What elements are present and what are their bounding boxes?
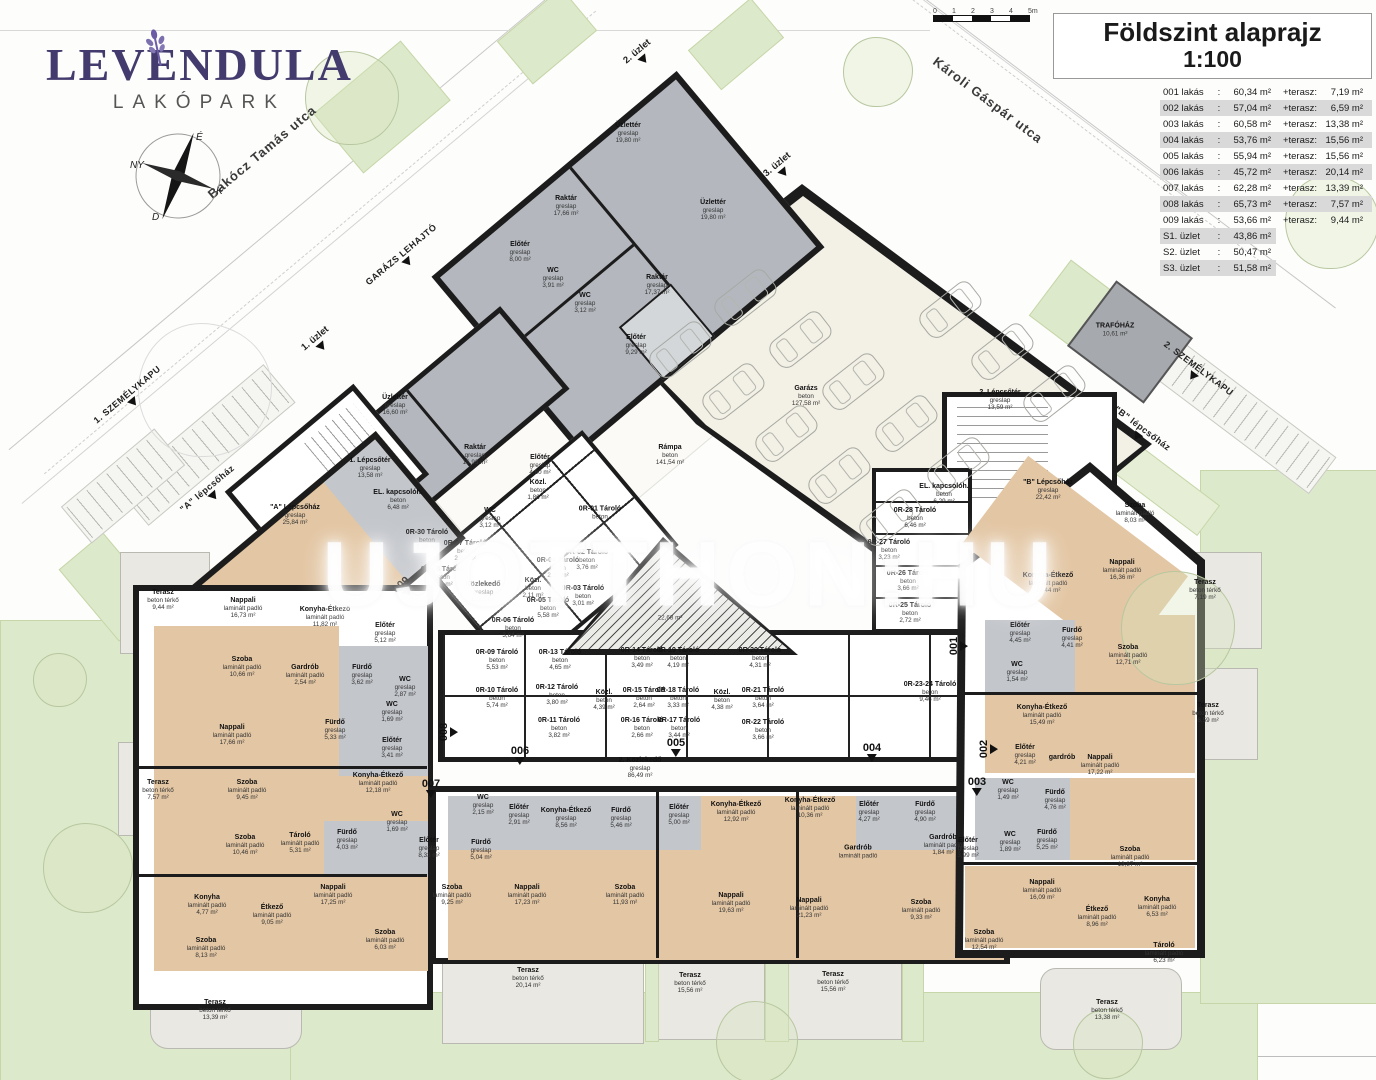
room-label: Nappalilaminált padló21,23 m² [790,897,829,919]
compass-s-label: D [152,212,159,223]
compass-rose: É K D NY [130,128,226,229]
legend-row: 008 lakás:65,73 m²+terasz:7,57 m² [1160,196,1372,212]
site-label: 1. üzlet [299,324,337,360]
party-wall [656,792,659,958]
tree-icon [138,323,272,457]
room-label: 0R-18 Tárolóbeton3,33 m² [657,687,699,709]
tree-icon [43,823,133,913]
site-label: 2. üzlet [621,37,659,73]
scale-bar: 012345m [933,8,1053,22]
room-label: Teraszbeton térkő20,14 m² [512,967,544,989]
plan-scale: 1:100 [1183,46,1242,73]
room-label: Szobalaminált padló8,13 m² [187,937,226,959]
plan-title: Földszint alaprajz [1103,19,1321,46]
room-label: WCgreslap2,87 m² [394,676,415,698]
room-label: Teraszbeton térkő13,39 m² [199,999,231,1021]
room-label: Teraszbeton térkő7,57 m² [142,779,174,801]
room-label: Előtérgreslap8,00 m² [509,241,530,263]
unit-marker: 007 [422,778,440,798]
lavender-sprig-icon [142,28,172,68]
room-label: 0R-21 Tárolóbeton3,64 m² [742,687,784,709]
legend-row-shop: S1. üzlet:43,86 m² [1160,228,1276,244]
room-label: Előtérgreslap8,33 m² [418,837,439,859]
logo-subtitle: LAKÓPARK [46,92,353,114]
room-label: Konyha-Étkezőlaminált padló12,92 m² [711,801,762,823]
room-label: 0R-20 Tárolóbeton4,31 m² [739,647,781,669]
room-label: Szobalaminált padló6,03 m² [366,929,405,951]
room-label: WCgreslap1,89 m² [999,831,1020,853]
room-label: Fürdőgreslap4,03 m² [336,829,357,851]
room-label: Gardróblaminált padló2,54 m² [286,664,325,686]
room-label: Nappalilaminált padló17,25 m² [314,884,353,906]
room-label: Közl.beton1,86 m² [527,479,548,501]
room-label: Szobalaminált padló9,45 m² [228,779,267,801]
room-label: Szobalaminált padló12,71 m² [1109,644,1148,666]
room-label: WCgreslap1,69 m² [381,701,402,723]
room-label: 2. Közlekedőgreslap86,49 m² [619,757,662,779]
compass-e-label: K [216,186,224,197]
room-label: Előtérgreslap2,91 m² [508,804,529,826]
unit-marker: 004 [863,742,881,762]
legend-row-shop: S2. üzlet:50,47 m² [1160,244,1276,260]
room-label: Teraszbeton térkő9,44 m² [147,589,179,611]
room-label: Nappalilaminált padló16,09 m² [1023,879,1062,901]
site-label: Károli Gáspár utca [930,54,1046,146]
room-label: Teraszbeton térkő15,56 m² [817,971,849,993]
room-label: Fürdőgreslap4,41 m² [1061,627,1082,649]
compass-n-label: É [196,130,203,143]
room-label: WCgreslap3,91 m² [542,267,563,289]
room-label: Tárolólaminált padló6,23 m² [1145,942,1184,964]
room-label: Konyhalaminált padló4,77 m² [188,894,227,916]
area-legend: 001 lakás:60,34 m²+terasz:7,19 m²002 lak… [1160,84,1372,276]
compass-w-label: NY [130,160,145,171]
unit-marker: 001 [948,637,968,655]
room-label: Raktárgreslap16,93 m² [463,444,488,466]
tree-icon [716,1001,798,1080]
tree-icon [843,37,913,107]
room-label: Fürdőgreslap5,25 m² [1036,829,1057,851]
room-label: 0R-09 Tárolóbeton5,53 m² [476,649,518,671]
room-label: Szobalaminált padló9,33 m² [902,899,941,921]
site-line [0,30,930,31]
logo: LEVENDULA LAKÓPARK [46,42,353,114]
room-label: Előtérgreslap3,41 m² [381,737,402,759]
room-label: Szobalaminált padló8,03 m² [1116,502,1155,524]
room-label: 0R-12 Tárolóbeton3,80 m² [536,684,578,706]
scale-tick: 2 [971,8,990,15]
room-label: Szobalaminált padló10,66 m² [223,656,262,678]
room-label: Szobalaminált padló11,93 m² [606,884,645,906]
room-label: gardrób [1049,754,1075,762]
room-label: Előtérgreslap5,00 m² [668,804,689,826]
room-label: 0R-01 Tárolóbeton [579,506,621,521]
room-label: Előtérgreslap9,29 m² [625,334,646,356]
unit-marker: 002 [978,740,998,758]
legend-row: 004 lakás:53,76 m²+terasz:15,56 m² [1160,132,1372,148]
room-label: Nappalilaminált padló19,63 m² [712,892,751,914]
room-label: Fürdőgreslap5,46 m² [610,807,631,829]
room-label: Nappalilaminált padló17,22 m² [1081,754,1120,776]
room-label: Előtérgreslap4,27 m² [858,801,879,823]
room-label: 1. Lépcsőtérgreslap13,58 m² [349,457,390,479]
room-label: Szobalaminált padló12,54 m² [965,929,1004,951]
room-label: Előtérgreslap4,21 m² [1014,744,1035,766]
floorplan-canvas: UJOTTHON:HU Üzlettérgreslap19,80 m²Raktá… [0,0,1376,1080]
unit-marker: 006 [511,745,529,765]
room-label: Étkezőlaminált padló9,05 m² [253,904,292,926]
legend-row: 005 lakás:55,94 m²+terasz:15,56 m² [1160,148,1372,164]
room-label: 0R-19 Tárolóbeton4,19 m² [657,647,699,669]
room-label: Konyha-Étkezőgreslap8,56 m² [541,807,592,829]
room-label: 0R-13 Tárolóbeton4,65 m² [539,649,581,671]
room-label: WCgreslap1,69 m² [386,811,407,833]
arrow-icon [450,727,458,737]
green-area [688,0,784,90]
room-label: 0R-23-24 Tárolóbeton9,46 m² [904,681,957,703]
legend-row: 001 lakás:60,34 m²+terasz:7,19 m² [1160,84,1372,100]
party-wall [958,862,1203,865]
tree-icon [33,653,87,707]
unit-marker: 008 [438,723,458,741]
scale-tick: 1 [952,8,971,15]
room-label: Konyhalaminált padló6,53 m² [1138,896,1177,918]
arrow-icon [671,749,681,757]
arrow-icon [960,641,968,651]
arrow-icon [867,754,877,762]
room-label: Konyha-Étkezőlaminált padló15,49 m² [1017,704,1068,726]
site-label: GARÁZS LEHAJTÓ [364,222,445,294]
room-label: EL. kapcsolóh.beton6,29 m² [919,483,968,505]
room-label: Konyha-Étkezőlaminált padló12,18 m² [353,772,404,794]
scale-tick: 4 [1009,8,1028,15]
room-label: Nappalilaminált padló16,36 m² [1103,559,1142,581]
legend-row: 003 lakás:60,58 m²+terasz:13,38 m² [1160,116,1372,132]
room-label: Teraszbeton térkő7,19 m² [1189,579,1221,601]
room-label: Tárolólaminált padló5,31 m² [281,832,320,854]
scale-tick: 5m [1028,8,1047,15]
green-separator [645,962,659,1042]
room-label: WCgreslap3,12 m² [574,292,595,314]
arrow-icon [990,744,998,754]
room-label: Konyha-Étkezőlaminált padló10,36 m² [785,797,836,819]
title-block: Földszint alaprajz 1:100 [1053,13,1372,79]
room-label: Közl.beton4,39 m² [593,689,614,711]
room-label: Nappalilaminált padló16,73 m² [224,597,263,619]
room-label: 2. Lépcsőtérgreslap13,59 m² [979,389,1020,411]
legend-row: 007 lakás:62,28 m²+terasz:13,39 m² [1160,180,1372,196]
room-label: Fürdőgreslap4,76 m² [1044,789,1065,811]
legend-row-shop: S3. üzlet:51,58 m² [1160,260,1276,276]
room-label: 0R-10 Tárolóbeton5,74 m² [476,687,518,709]
scale-tick: 3 [990,8,1009,15]
unit-marker: 003 [968,776,986,796]
room-label: EL. kapcsolóh.beton6,48 m² [373,489,422,511]
room-label: Előtérgreslap4,60 m² [529,454,550,476]
room-patch [154,626,339,776]
room-label: Fürdőgreslap3,62 m² [351,664,372,686]
room-label: Nappalilaminált padló17,66 m² [213,724,252,746]
room-label: Teraszbeton térkő13,38 m² [1091,999,1123,1021]
legend-row: 006 lakás:45,72 m²+terasz:20,14 m² [1160,164,1372,180]
room-label: Fürdőgreslap5,04 m² [470,839,491,861]
room-label: Nappalilaminált padló17,23 m² [508,884,547,906]
scale-segments [933,15,1030,22]
room-label: Raktárgreslap17,37 m² [645,274,670,296]
green-separator [902,962,924,1042]
room-label: Üzlettérgreslap19,80 m² [700,199,726,221]
room-label: "B" Lépcsőházgreslap22,42 m² [1023,479,1073,501]
room-label: Üzlettérgreslap19,80 m² [615,122,641,144]
party-wall [958,692,1203,695]
shop-inner-wall [406,390,471,467]
party-wall [139,874,427,877]
room-label: Garázsbeton127,58 m² [792,385,820,407]
room-label: Étkezőlaminált padló8,96 m² [1078,906,1117,928]
room-label: Gardróblaminált padló [839,845,878,860]
room-label: Közl.beton4,38 m² [711,689,732,711]
room-label: Szobalaminált padló10,46 m² [226,834,265,856]
room-label: Teraszbeton térkő6,59 m² [1192,702,1224,724]
party-wall [139,766,427,769]
room-label: 0R-17 Tárolóbeton3,44 m² [658,717,700,739]
arrow-icon [972,788,982,796]
room-label: Raktárgreslap17,66 m² [554,195,579,217]
unit-marker: 005 [667,737,685,757]
room-label: Fürdőgreslap4,90 m² [914,801,935,823]
arrow-icon [515,757,525,765]
arrow-icon [426,790,436,798]
scale-ticks: 012345m [933,8,1053,15]
room-label: Fürdőgreslap5,33 m² [324,719,345,741]
green-area [497,0,597,84]
room-label: 0R-11 Tárolóbeton3,82 m² [538,717,580,739]
legend-row: 009 lakás:53,66 m²+terasz:9,44 m² [1160,212,1372,228]
watermark: UJOTTHON:HU [322,523,1058,628]
room-label: Előtérgreslap3,99 m² [957,837,978,859]
room-label: "A" Lépcsőházgreslap25,84 m² [270,504,320,526]
room-label: Teraszbeton térkő15,56 m² [674,972,706,994]
room-label: Szobalaminált padló13,87 m² [1111,846,1150,868]
room-label: Szobalaminált padló9,25 m² [433,884,472,906]
room-label: WCgreslap1,49 m² [997,779,1018,801]
room-label: Üzlettérgreslap16,60 m² [382,394,408,416]
scale-tick: 0 [933,8,952,15]
room-label: 0R-22 Tárolóbeton3,66 m² [742,719,784,741]
room-label: WCgreslap2,15 m² [472,794,493,816]
room-label: WCgreslap1,54 m² [1006,661,1027,683]
room-label: Rámpabeton141,54 m² [656,444,684,466]
logo-title: LEVENDULA [46,42,353,88]
legend-row: 002 lakás:57,04 m²+terasz:6,59 m² [1160,100,1372,116]
room-label: TRAFÓHÁZ10,61 m² [1096,323,1135,338]
